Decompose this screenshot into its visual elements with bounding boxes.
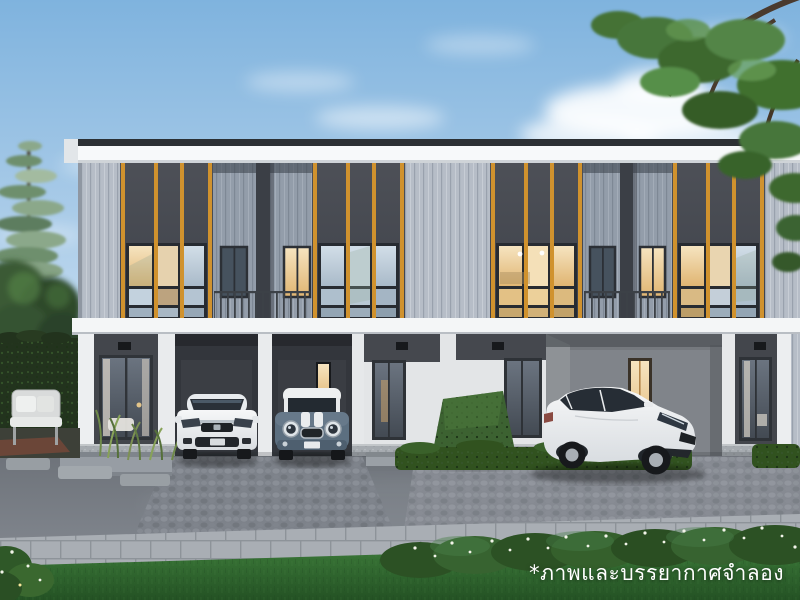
living-window-section-1	[94, 334, 158, 446]
feature-panel-4	[672, 163, 765, 320]
wall-sconce	[754, 342, 766, 350]
corner-column	[777, 334, 791, 458]
balcony-railing	[584, 293, 670, 319]
glass-door-right	[739, 357, 772, 441]
upstairs-window-2	[318, 243, 399, 320]
mini-hatchback-front	[273, 388, 351, 467]
upstairs-window-1	[126, 243, 207, 320]
balcony-railing	[214, 293, 310, 319]
wall-sconce	[492, 342, 504, 350]
townhouse-building	[64, 139, 800, 462]
upstairs-window-3-lit	[496, 243, 577, 320]
wall-sconce	[396, 342, 408, 350]
column	[158, 334, 175, 458]
upstairs-window-4	[678, 243, 759, 320]
entry-glass-door	[372, 360, 406, 440]
sliding-glass-door-1	[99, 355, 153, 440]
balcony-recess-1	[212, 163, 312, 320]
white-sedan-front	[175, 394, 259, 467]
feature-panel-1	[120, 163, 213, 320]
watermark-caption: *ภาพและบรรยากาศจำลอง	[529, 557, 784, 590]
corner-column	[78, 334, 94, 460]
balcony-recess-2	[582, 163, 672, 320]
column	[258, 334, 272, 458]
feature-panel-3	[490, 163, 583, 320]
townhome-rendering: *ภาพและบรรยากาศจำลอง	[0, 0, 800, 600]
column	[722, 334, 735, 458]
feature-panel-2	[312, 163, 405, 320]
slab-band	[72, 318, 800, 334]
wall-sconce	[118, 342, 131, 350]
door-section-right	[735, 334, 777, 446]
roof-fascia	[64, 139, 800, 163]
